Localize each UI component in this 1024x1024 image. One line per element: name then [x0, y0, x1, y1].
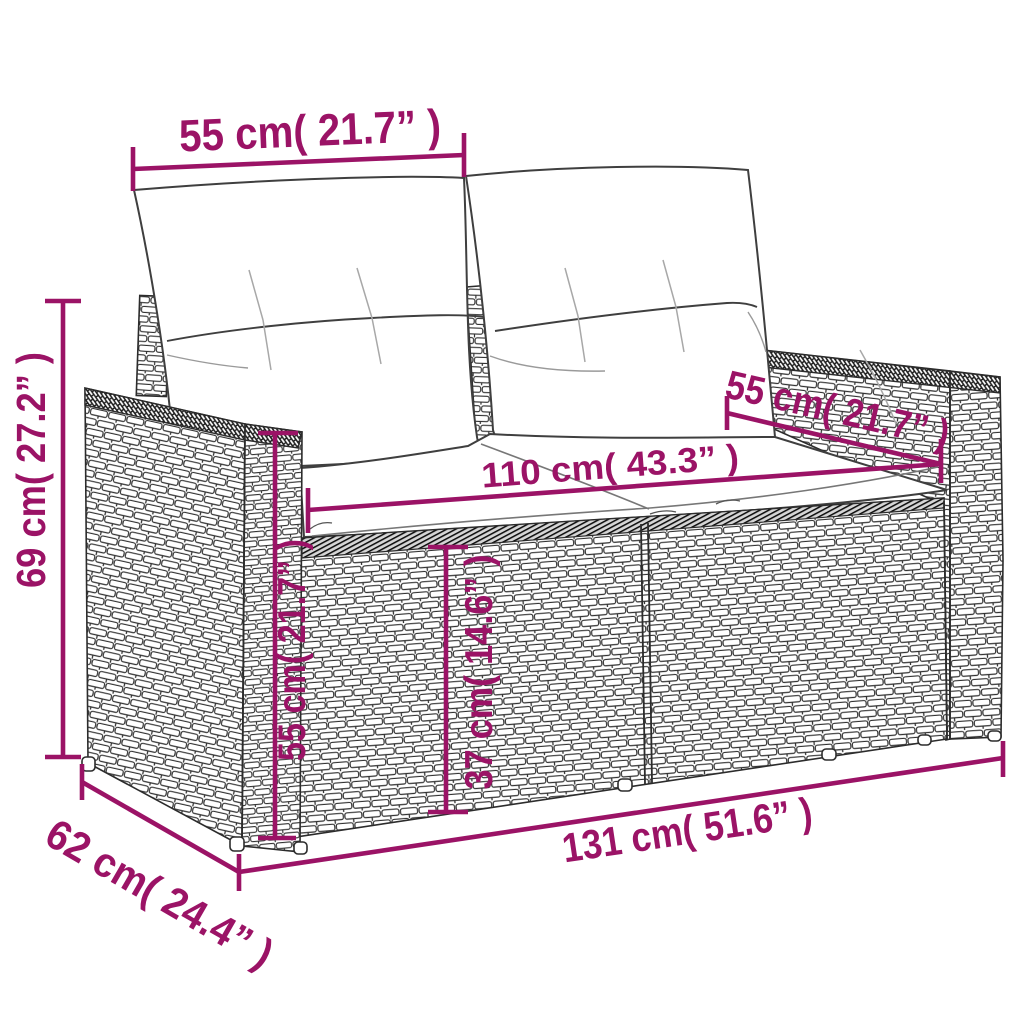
svg-text:69 cm( 27.2” ): 69 cm( 27.2” ) — [8, 352, 54, 588]
svg-text:37 cm( 14.6” ): 37 cm( 14.6” ) — [458, 555, 501, 790]
svg-text:55 cm( 21.7” ): 55 cm( 21.7” ) — [271, 539, 314, 761]
